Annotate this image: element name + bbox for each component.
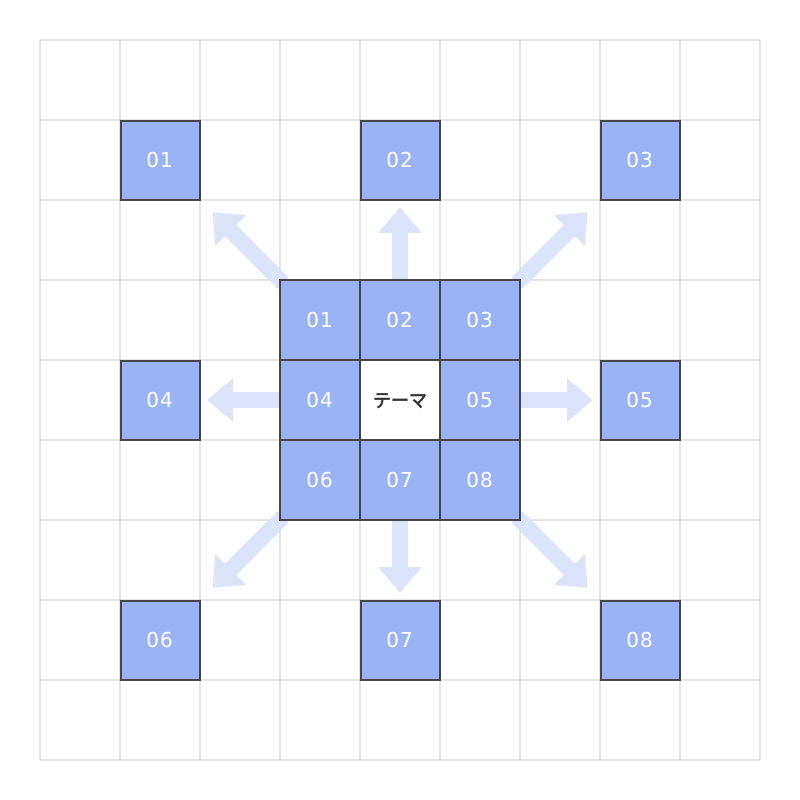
center-cell-03: 03 (441, 281, 519, 359)
arrow-left-icon (207, 378, 280, 422)
center-cell-04: 04 (281, 361, 359, 439)
outer-cell-04: 04 (120, 360, 201, 441)
center-theme-block: 01 02 03 04 テーマ 05 06 07 08 (279, 279, 521, 521)
center-cell-05: 05 (441, 361, 519, 439)
outer-cell-01: 01 (120, 120, 201, 201)
theme-cell: テーマ (361, 361, 439, 439)
center-cell-07: 07 (361, 441, 439, 519)
outer-cell-07: 07 (360, 600, 441, 681)
arrow-right-icon (520, 378, 593, 422)
center-cell-08: 08 (441, 441, 519, 519)
outer-cell-05: 05 (600, 360, 681, 441)
outer-cell-03: 03 (600, 120, 681, 201)
mandala-chart-diagram: 01 02 03 04 テーマ 05 06 07 08 01 02 03 04 … (0, 0, 800, 800)
outer-cell-06: 06 (120, 600, 201, 681)
center-cell-01: 01 (281, 281, 359, 359)
outer-cell-02: 02 (360, 120, 441, 201)
arrow-up-icon (378, 207, 422, 280)
center-cell-06: 06 (281, 441, 359, 519)
outer-cell-08: 08 (600, 600, 681, 681)
center-cell-02: 02 (361, 281, 439, 359)
arrow-down-icon (378, 520, 422, 593)
